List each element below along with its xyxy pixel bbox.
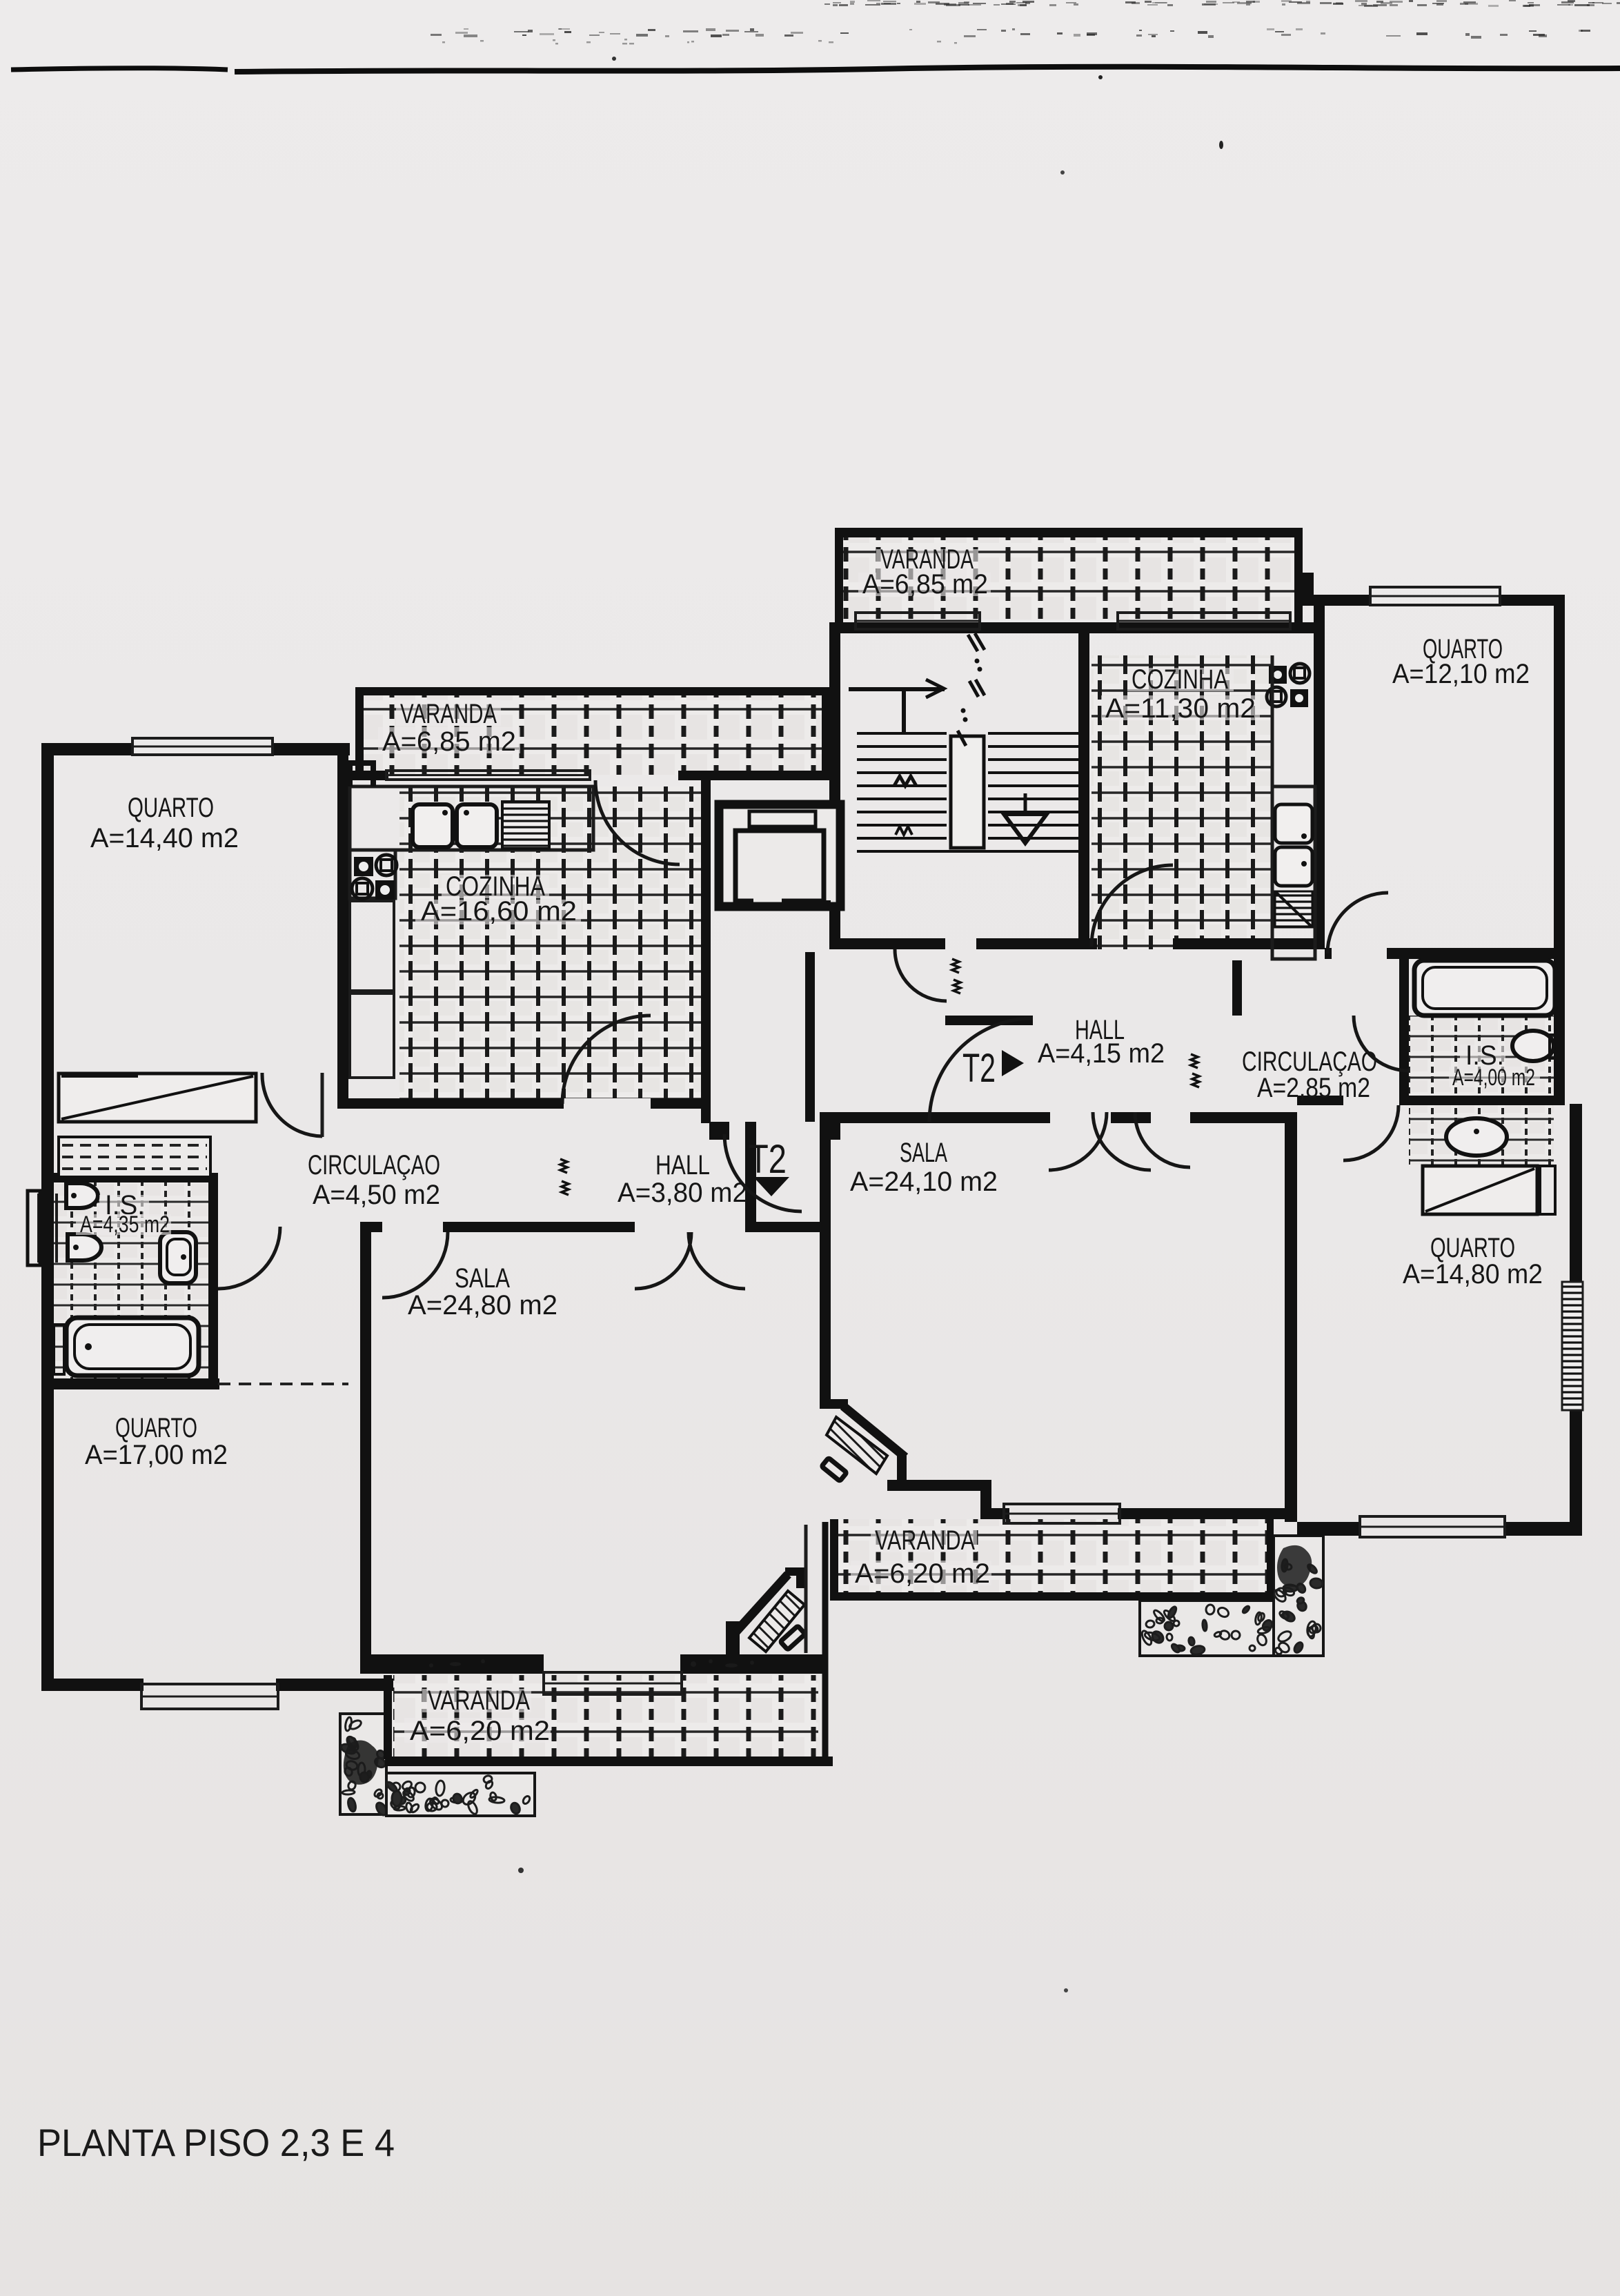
svg-text:A=4,00 m2: A=4,00 m2 <box>1452 1065 1535 1091</box>
svg-text:A=24,10 m2: A=24,10 m2 <box>850 1167 998 1197</box>
svg-text:A=24,80 m2: A=24,80 m2 <box>408 1290 557 1320</box>
svg-text:A=6,20 m2: A=6,20 m2 <box>855 1558 990 1589</box>
svg-text:A=11,30 m2: A=11,30 m2 <box>1105 693 1256 724</box>
svg-text:SALA: SALA <box>900 1138 947 1168</box>
svg-text:A=16,60 m2: A=16,60 m2 <box>421 896 577 927</box>
svg-text:A=6,85 m2: A=6,85 m2 <box>382 726 516 757</box>
svg-text:SALA: SALA <box>455 1263 510 1294</box>
svg-text:VARANDA: VARANDA <box>875 1525 975 1556</box>
svg-text:QUARTO: QUARTO <box>115 1413 197 1443</box>
svg-text:CIRCULAÇAO: CIRCULAÇAO <box>308 1150 440 1180</box>
svg-text:A=12,10 m2: A=12,10 m2 <box>1392 659 1530 689</box>
svg-text:A=4,50 m2: A=4,50 m2 <box>313 1180 440 1210</box>
svg-text:T2: T2 <box>962 1046 996 1091</box>
svg-text:A=4,35 m2: A=4,35 m2 <box>80 1211 170 1238</box>
svg-text:A=17,00 m2: A=17,00 m2 <box>85 1440 228 1470</box>
svg-text:A=14,40 m2: A=14,40 m2 <box>90 823 239 853</box>
svg-text:T2: T2 <box>749 1137 787 1182</box>
svg-text:PLANTA PISO 2,3 E 4: PLANTA PISO 2,3 E 4 <box>37 2121 395 2164</box>
svg-text:QUARTO: QUARTO <box>128 793 214 823</box>
svg-text:HALL: HALL <box>655 1150 710 1180</box>
svg-text:A=3,80 m2: A=3,80 m2 <box>618 1178 747 1208</box>
svg-text:VARANDA: VARANDA <box>400 699 497 729</box>
svg-text:VARANDA: VARANDA <box>428 1685 530 1716</box>
svg-text:A=6,20 m2: A=6,20 m2 <box>410 1716 550 1746</box>
svg-text:A=4,15 m2: A=4,15 m2 <box>1038 1038 1165 1069</box>
svg-text:A=6,85 m2: A=6,85 m2 <box>862 569 988 600</box>
svg-text:A=2,85 m2: A=2,85 m2 <box>1257 1073 1370 1103</box>
svg-text:A=14,80 m2: A=14,80 m2 <box>1403 1259 1543 1289</box>
svg-text:COZINHA: COZINHA <box>1132 664 1228 695</box>
